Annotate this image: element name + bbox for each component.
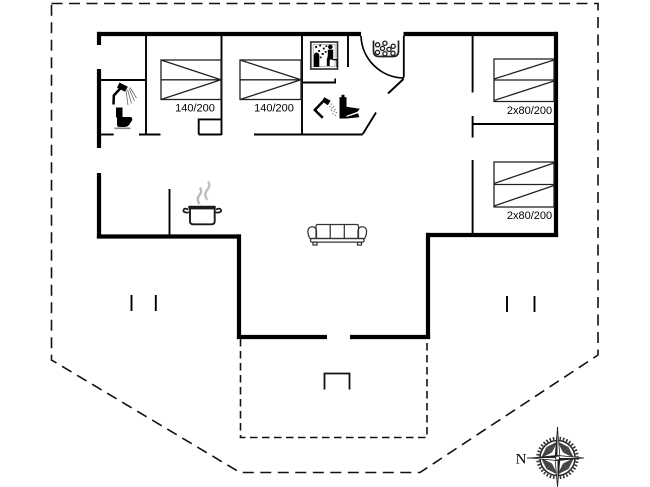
svg-text:140/200: 140/200 — [254, 102, 294, 114]
svg-text:140/200: 140/200 — [175, 102, 215, 114]
svg-text:N: N — [516, 452, 527, 468]
svg-text:2x80/200: 2x80/200 — [507, 210, 552, 222]
svg-text:2x80/200: 2x80/200 — [507, 105, 552, 117]
